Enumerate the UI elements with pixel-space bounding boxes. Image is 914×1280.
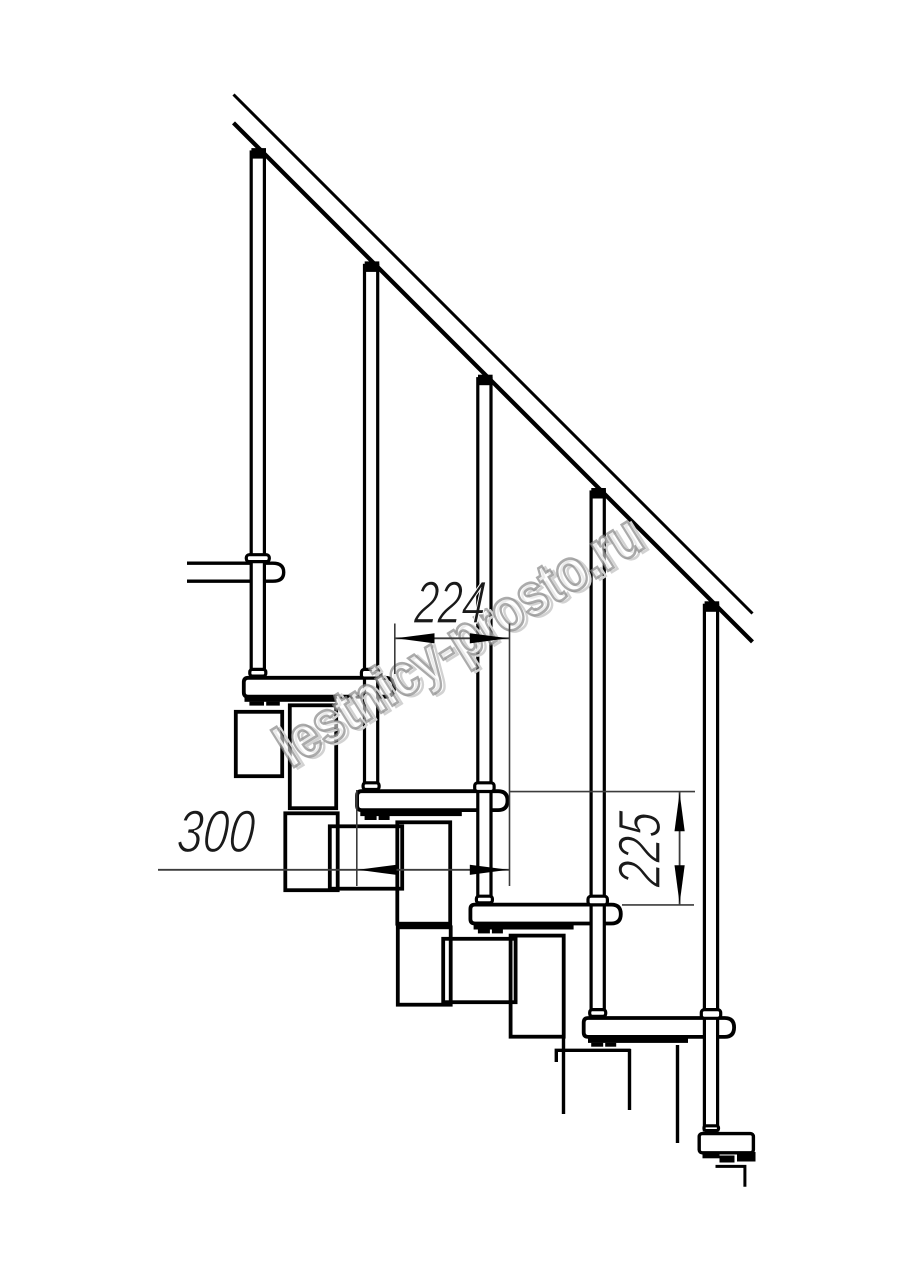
svg-text:225: 225 bbox=[607, 809, 674, 890]
svg-text:300: 300 bbox=[175, 798, 258, 865]
svg-text:224: 224 bbox=[412, 570, 489, 637]
